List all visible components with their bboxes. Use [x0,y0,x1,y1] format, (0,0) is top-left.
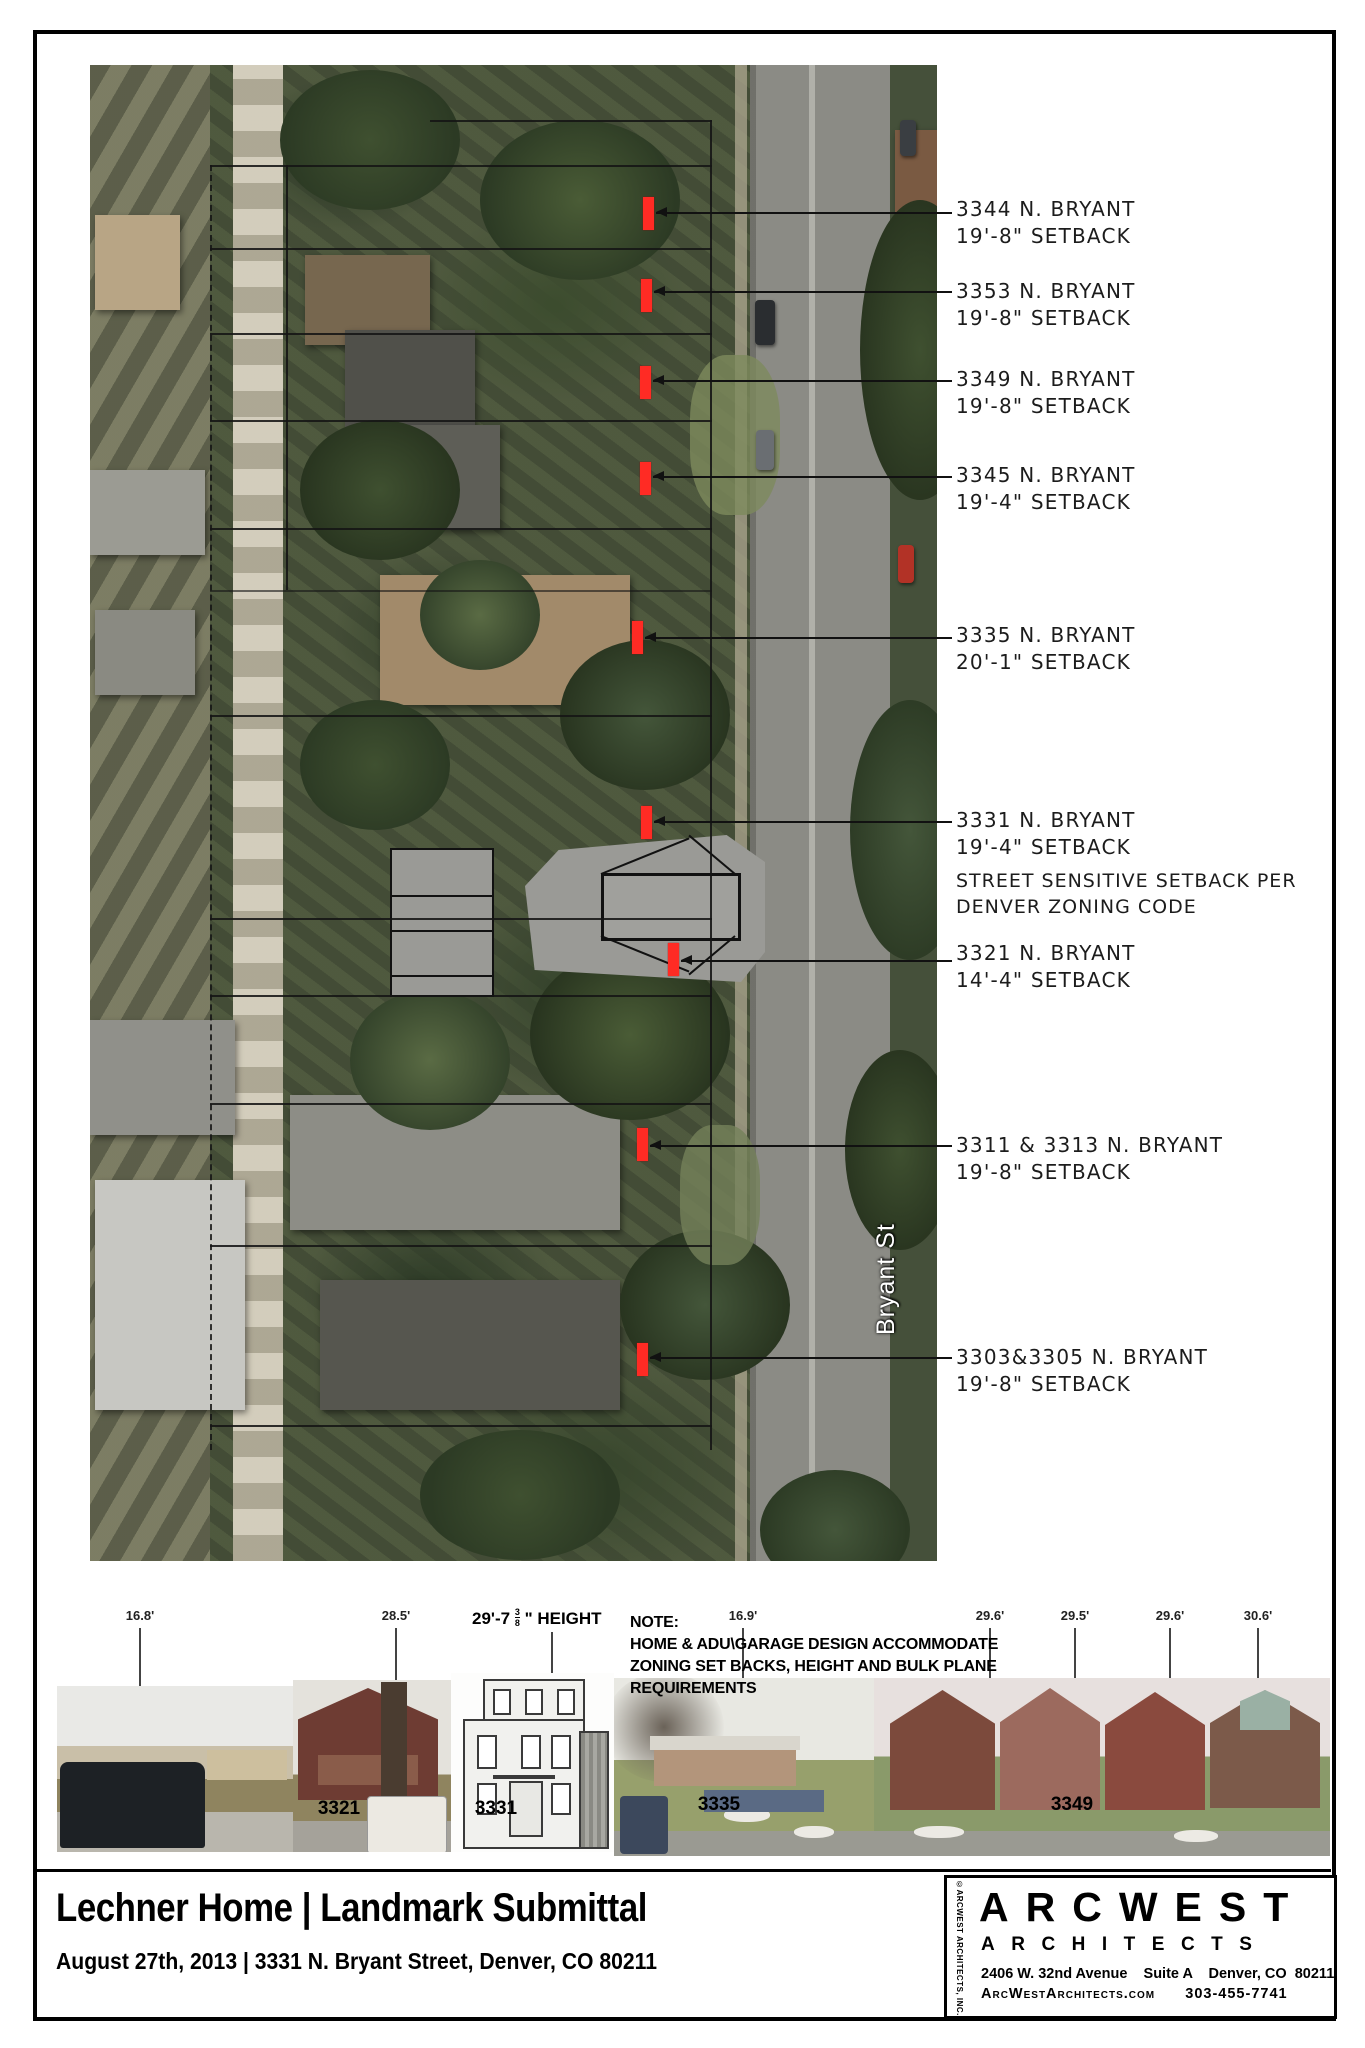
parked-suv [60,1762,205,1848]
callout-setback: 19'-8" SETBACK [956,223,1136,250]
callout-address: 3345 N. BRYANT [956,462,1136,489]
zoning-note: STREET SENSITIVE SETBACK PER DENVER ZONI… [956,868,1297,920]
setback-marker-3321 [668,943,679,976]
parked-car [755,300,775,345]
zoning-note-line2: DENVER ZONING CODE [956,894,1297,920]
lot-line [210,528,712,530]
callout-setback: 19'-8" SETBACK [956,305,1136,332]
firm-subtitle: ARCHITECTS [981,1934,1334,1956]
roof [320,1280,620,1410]
leader-arrow [653,471,664,481]
tree-canopy [420,1430,620,1560]
note-title: NOTE: [630,1612,1030,1634]
setback-marker-3303 [637,1343,648,1376]
leader-arrow [650,1352,661,1362]
lot-line [210,715,712,717]
lot-line [430,120,712,122]
callout-address: 3311 & 3313 N. BRYANT [956,1132,1223,1159]
setback-callout: 3345 N. BRYANT 19'-4" SETBACK [956,462,1136,516]
leader-line [653,476,952,478]
note-line2: ZONING SET BACKS, HEIGHT AND BULK PLANE [630,1656,1030,1678]
leader-arrow [650,1140,661,1150]
roof [95,215,180,310]
setback-callout: 3349 N. BRYANT 19'-8" SETBACK [956,366,1136,420]
property-line-rear [286,165,288,590]
snow-patch [914,1826,964,1838]
tree-canopy [420,560,540,670]
height-measurement: 16.8' [126,1608,154,1623]
leader-arrow [645,632,656,642]
streetscape-photo-3321 [293,1680,451,1852]
elevation-main-body [463,1719,585,1849]
lot-line [210,248,712,250]
firm-name: ARCWEST [979,1884,1334,1931]
callout-address: 3353 N. BRYANT [956,278,1136,305]
callout-address: 3349 N. BRYANT [956,366,1136,393]
leader-line [654,291,952,293]
leader-arrow [653,375,664,385]
house-3335 [654,1750,796,1786]
setback-marker-3344 [643,197,654,230]
property-line-alley-dashed [210,165,212,1450]
window [521,1735,541,1769]
snow-patch [1174,1830,1218,1842]
porch-roof-line [493,1775,555,1779]
callout-address: 3344 N. BRYANT [956,196,1136,223]
house-number-label: 3335 [698,1794,740,1816]
leader-line [654,821,952,823]
parked-car-red [898,545,914,583]
height-suffix: " HEIGHT [525,1609,602,1628]
note-line1: HOME & ADU\GARAGE DESIGN ACCOMMODATE [630,1634,1030,1656]
lot-line [210,1425,712,1427]
window [557,1689,575,1715]
height-measurement: 29.6' [1156,1608,1184,1623]
setback-callout: 3331 N. BRYANT 19'-4" SETBACK [956,807,1136,861]
aerial-road-centerline [809,65,815,1561]
tree-canopy [280,70,460,210]
setback-callout: 3335 N. BRYANT 20'-1" SETBACK [956,622,1136,676]
bungalow-roof [650,1736,800,1750]
garage-division-line [392,895,492,897]
lot-line [210,1103,712,1105]
victorian-gable-trim [1240,1690,1290,1730]
copyright-text: ©ARCWEST ARCHITECTS, INC. [948,1880,964,2014]
architect-logo-block: ©ARCWEST ARCHITECTS, INC. ARCWEST ARCHIT… [944,1875,1337,2019]
house-number-label: 3321 [318,1798,360,1820]
proposed-garage-footprint [390,848,494,997]
parked-truck [367,1796,447,1852]
firm-address: 2406 W. 32nd Avenue Suite A Denver, CO 8… [981,1966,1334,1982]
landmark-submittal-sheet: Bryant St 3344 N. BRYANT 19'-8" SETBACK [0,0,1365,2048]
proposed-home-upper-mass [601,873,741,941]
property-line-street-edge [710,120,712,1450]
leader-arrow [654,816,665,826]
callout-setback: 19'-8" SETBACK [956,1159,1223,1186]
setback-marker-3311 [637,1128,648,1161]
measurement-tick [395,1628,397,1680]
house-number-label: 3331 [475,1798,517,1820]
setback-marker-3349 [640,366,651,399]
fraction-denominator: 8 [515,1618,520,1628]
callout-address: 3331 N. BRYANT [956,807,1136,834]
titleblock-divider [33,1869,1331,1872]
setback-callout: 3303&3305 N. BRYANT 19'-8" SETBACK [956,1344,1208,1398]
tree-canopy [300,420,460,560]
leader-line [656,212,952,214]
measurement-tick [551,1632,553,1676]
parked-van [620,1796,668,1854]
house-number-label: 3349 [1051,1794,1093,1816]
window [551,1783,571,1815]
lot-line [210,165,712,167]
setback-marker-3345 [640,462,651,495]
elevation-side-wing [579,1731,609,1849]
setback-callout: 3321 N. BRYANT 14'-4" SETBACK [956,940,1136,994]
parked-car [900,120,916,156]
lot-line [210,333,712,335]
leader-line [645,637,952,639]
leader-arrow [681,955,692,965]
height-measurement: 29.5' [1061,1608,1089,1623]
window [493,1689,511,1715]
zoning-note-line1: STREET SENSITIVE SETBACK PER [956,868,1297,894]
height-fraction: 38 [515,1608,520,1627]
proposed-elevation-drawing [451,1673,614,1852]
setback-marker-3331 [641,806,652,839]
aerial-map: Bryant St [90,65,937,1561]
garage-division-line [392,975,492,977]
streetscape-photo-3349-block [874,1678,1330,1856]
window [551,1735,571,1769]
victorian-house [1000,1688,1100,1810]
streetscape-photo-3335 [614,1678,874,1856]
lot-line [210,420,712,422]
design-note: NOTE: HOME & ADU\GARAGE DESIGN ACCOMMODA… [630,1612,1030,1700]
ranch-house [207,1750,287,1780]
setback-callout: 3344 N. BRYANT 19'-8" SETBACK [956,196,1136,250]
lot-line-dotted [210,590,712,592]
callout-address: 3303&3305 N. BRYANT [956,1344,1208,1371]
victorian-house [1105,1692,1205,1810]
garage-division-line [392,930,492,932]
measurement-tick [139,1628,141,1688]
window [477,1735,497,1769]
callout-setback: 20'-1" SETBACK [956,649,1136,676]
sheet-subtitle: August 27th, 2013 | 3331 N. Bryant Stree… [56,1948,657,1975]
parked-car [756,430,774,470]
tree-canopy [300,700,450,830]
roof [90,1020,235,1135]
callout-setback: 14'-4" SETBACK [956,967,1136,994]
callout-setback: 19'-4" SETBACK [956,489,1136,516]
leader-line [650,1145,952,1147]
callout-address: 3321 N. BRYANT [956,940,1136,967]
leader-line [653,380,952,382]
roof [345,330,475,430]
lot-line [210,995,712,997]
victorian-house [890,1690,995,1810]
firm-contact: ArcWestArchitects.com 303-455-7741 [981,1986,1288,2002]
setback-marker-3353 [641,279,652,312]
setback-callout: 3353 N. BRYANT 19'-8" SETBACK [956,278,1136,332]
streetscape-photo-left [57,1686,293,1852]
street-name-label: Bryant St [872,1185,932,1335]
roof [90,470,205,555]
fraction-numerator: 3 [515,1607,520,1617]
roof [95,1180,245,1410]
snow-patch [794,1826,834,1838]
sheet-title: Lechner Home | Landmark Submittal [56,1886,647,1931]
leader-line [650,1357,952,1359]
lot-line [210,918,712,920]
tree-canopy [350,990,510,1130]
height-measurement: 28.5' [382,1608,410,1623]
height-prefix: 29'-7 [472,1609,510,1628]
setback-callout: 3311 & 3313 N. BRYANT 19'-8" SETBACK [956,1132,1223,1186]
callout-address: 3335 N. BRYANT [956,622,1136,649]
setback-marker-3335 [632,621,643,654]
roof [95,610,195,695]
height-measurement: 30.6' [1244,1608,1272,1623]
proposed-height-label: 29'-7 38 " HEIGHT [472,1608,602,1629]
note-line3: REQUIREMENTS [630,1678,1030,1700]
lot-line [210,1245,712,1247]
callout-setback: 19'-4" SETBACK [956,834,1136,861]
callout-setback: 19'-8" SETBACK [956,1371,1208,1398]
leader-arrow [654,286,665,296]
window [525,1689,543,1715]
callout-setback: 19'-8" SETBACK [956,393,1136,420]
leader-line [681,960,952,962]
leader-arrow [656,207,667,217]
